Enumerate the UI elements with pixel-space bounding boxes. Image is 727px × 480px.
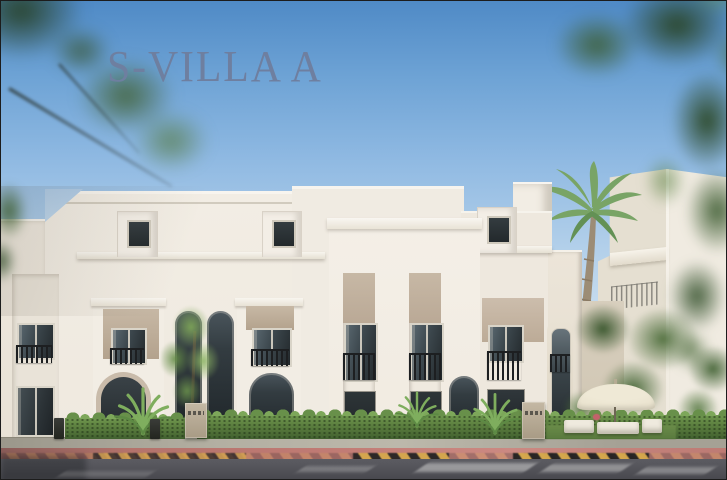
address-pillar-right <box>522 402 545 439</box>
tree-shadow-overlay <box>1 186 331 316</box>
outdoor-sofa <box>597 422 639 434</box>
road-marking <box>297 466 376 472</box>
flower-pot <box>593 414 600 420</box>
attic-window <box>487 216 511 244</box>
palm-shrub <box>467 387 523 435</box>
juliet-railing <box>251 349 289 366</box>
outdoor-chair <box>642 419 662 433</box>
palm-shrub <box>393 385 441 429</box>
attic-dormer-right <box>477 207 517 253</box>
bollard <box>150 419 160 439</box>
road-marking <box>636 467 716 474</box>
tan-panel <box>409 273 441 323</box>
outdoor-sofa <box>564 420 594 433</box>
road-marking <box>57 471 156 477</box>
road-marking <box>540 464 631 472</box>
juliet-railing-upper-left <box>16 345 52 363</box>
bollard <box>54 418 64 439</box>
tan-panel <box>343 273 375 323</box>
juliet-railing <box>343 353 375 380</box>
scene: S-VILLA A <box>0 0 727 480</box>
road-marking <box>415 463 538 472</box>
juliet-railing <box>409 353 441 380</box>
scene-title: S-VILLA A <box>107 45 323 89</box>
palm-shrub <box>111 379 175 437</box>
juliet-railing <box>110 348 144 364</box>
juliet-railing-right <box>487 351 521 380</box>
address-pillar-left <box>185 403 207 438</box>
window-lower-left <box>16 386 55 437</box>
